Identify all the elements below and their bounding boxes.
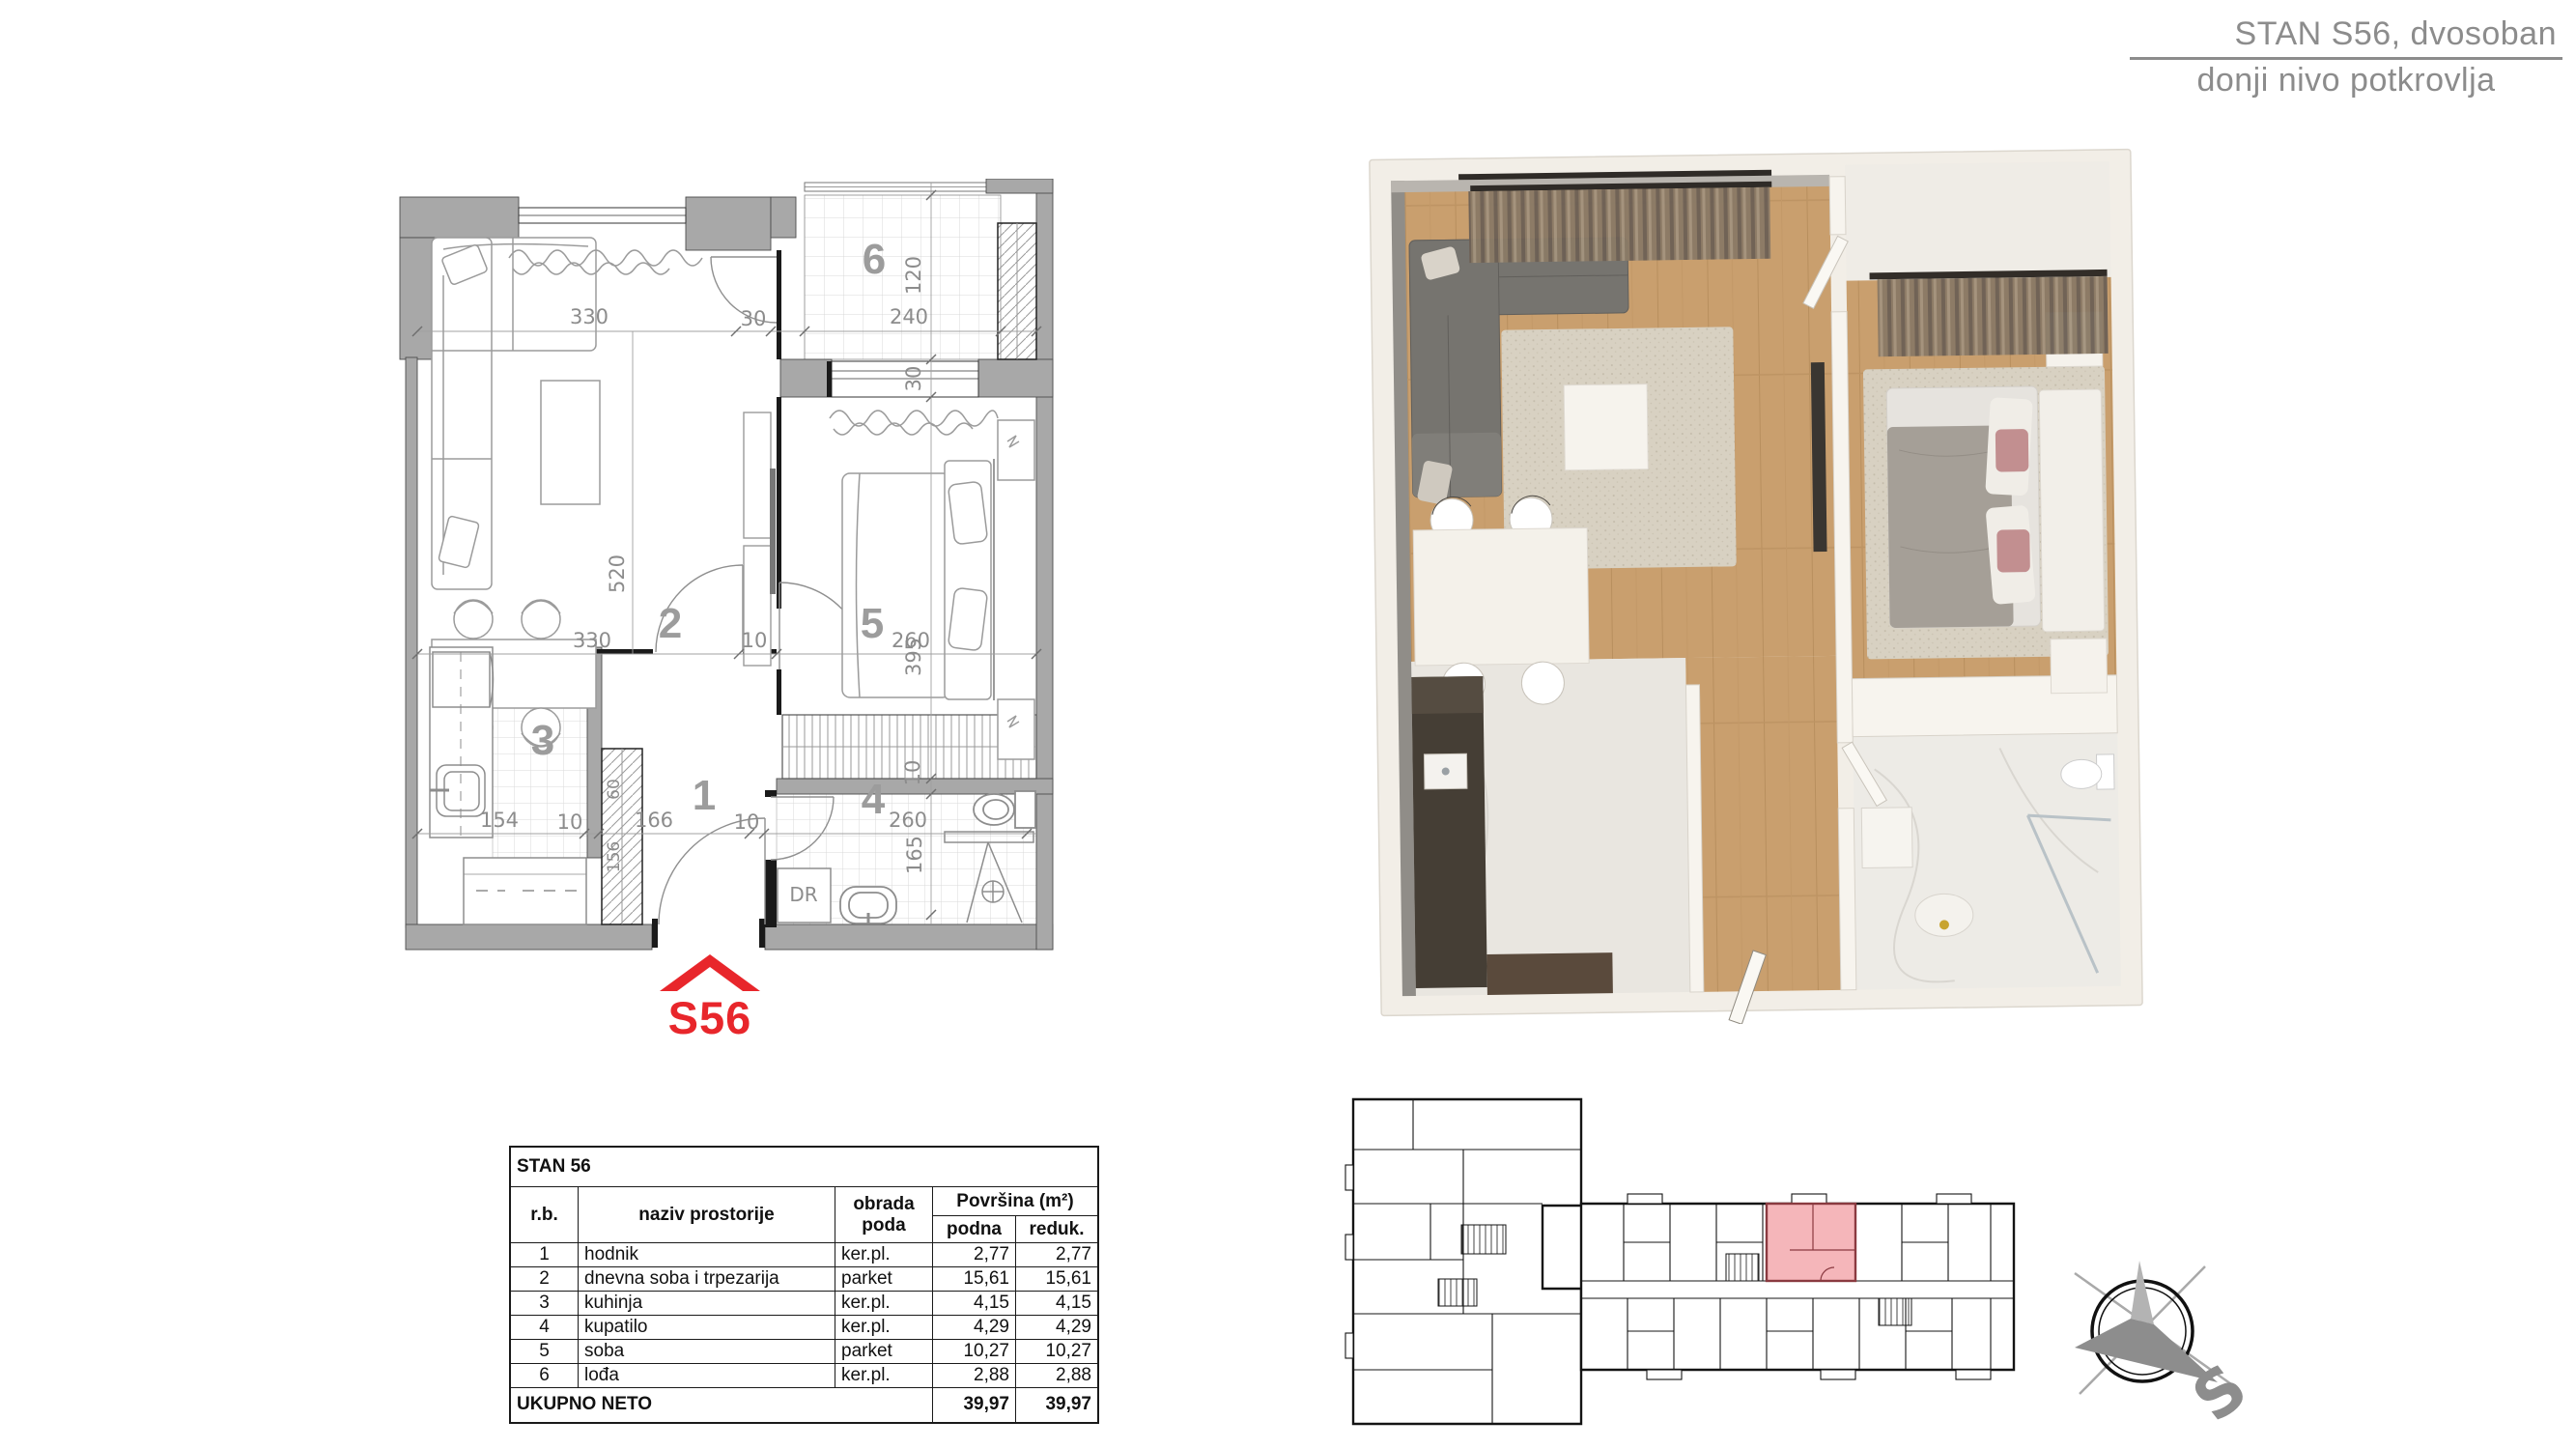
cell-reduk: 10,27 [1016,1340,1099,1364]
table-total-row: UKUPNO NETO 39,97 39,97 [510,1388,1098,1423]
cell-naziv: hodnik [579,1243,835,1267]
col-header-reduk: reduk. [1016,1216,1099,1243]
cell-rb: 5 [510,1340,579,1364]
title-underline [2130,57,2562,60]
coffee-table [541,381,600,504]
sink [840,887,896,923]
col-header-podna: podna [933,1216,1016,1243]
compass-rose: S [2046,1239,2268,1442]
cell-rb: 4 [510,1316,579,1340]
area-table-wrapper: STAN 56 r.b. naziv prostorije obrada pod… [509,1146,1099,1424]
floorplan-sheet: STAN S56, dvosoban donji nivo potkrovlja [0,0,2576,1449]
cell-podna: 15,61 [933,1267,1016,1292]
dim-v-30: 30 [902,366,925,392]
washer-label: DR [789,883,817,906]
unit-logo-label: S56 [631,995,789,1040]
total-podna: 39,97 [933,1388,1016,1423]
table-row: 1 hodnik ker.pl. 2,77 2,77 [510,1243,1098,1267]
cell-reduk: 2,88 [1016,1364,1099,1388]
cell-rb: 1 [510,1243,579,1267]
cell-obrada: parket [835,1340,933,1364]
keyplan-highlighted-unit [1767,1204,1855,1281]
dim-bot-154: 154 [480,809,519,832]
apartment-title: STAN S56, dvosoban [2130,15,2562,53]
table-row: 3 kuhinja ker.pl. 4,15 4,15 [510,1292,1098,1316]
dim-bot-166: 166 [635,809,673,832]
col-header-naziv: naziv prostorije [579,1187,835,1243]
dim-top-30: 30 [741,307,767,330]
render-3d [1360,143,2154,1024]
table-row: 2 dnevna soba i trpezarija parket 15,61 … [510,1267,1098,1292]
cell-naziv: kupatilo [579,1316,835,1340]
building-keyplan [1338,1090,2033,1435]
dim-mid-330: 330 [573,629,611,652]
col-header-obrada: obrada poda [835,1187,933,1243]
col-header-rb: r.b. [510,1187,579,1243]
render-tv [1811,362,1827,552]
hall-closet-hatch [602,749,642,924]
room-5-bedroom: 5 [861,600,884,647]
dim-bath-10: 10 [901,760,924,786]
cell-rb: 2 [510,1267,579,1292]
dim-bot-10a: 10 [557,810,583,834]
cell-naziv: lođa [579,1364,835,1388]
dim-bot-10b: 10 [734,810,760,834]
cell-rb: 6 [510,1364,579,1388]
cell-podna: 4,15 [933,1292,1016,1316]
render-coffee-table [1564,384,1648,470]
kitchen-lower-counter [464,858,586,924]
curtain-bedroom [830,411,998,435]
render-nightstand-bottom [2051,639,2108,694]
sheet-title: STAN S56, dvosoban donji nivo potkrovlja [2130,15,2562,99]
dim-mid-260: 260 [892,629,930,652]
cell-obrada: ker.pl. [835,1243,933,1267]
dim-v-120: 120 [902,256,925,295]
unit-logo: S56 [631,954,789,1040]
dim-v-520: 520 [606,554,629,593]
table-title: STAN 56 [510,1147,1098,1187]
dim-closet-156: 156 [605,841,624,872]
render-corridor-floor [1685,656,1841,992]
loggia-closet-hatch [998,223,1036,359]
cell-podna: 2,88 [933,1364,1016,1388]
render-bed [1886,385,2105,634]
floorplan-2d: DR 330 30 240 120 30 520 395 [399,179,1056,952]
render-loggia [1845,161,2111,281]
render-curtains-bedroom [1870,270,2109,356]
room-1-hall: 1 [693,772,716,819]
table-row: 5 soba parket 10,27 10,27 [510,1340,1098,1364]
dim-top-330: 330 [570,305,609,328]
cell-reduk: 2,77 [1016,1243,1099,1267]
cell-obrada: ker.pl. [835,1292,933,1316]
nightstands [998,420,1034,759]
table-row: 4 kupatilo ker.pl. 4,29 4,29 [510,1316,1098,1340]
cell-podna: 2,77 [933,1243,1016,1267]
room-3-kitchen: 3 [531,717,554,764]
dim-top-240: 240 [890,305,928,328]
dim-mid-10: 10 [742,629,768,652]
cell-obrada: ker.pl. [835,1364,933,1388]
room-6-loggia: 6 [863,236,886,283]
cell-reduk: 15,61 [1016,1267,1099,1292]
cell-obrada: ker.pl. [835,1316,933,1340]
dim-closet-60: 60 [605,779,624,800]
window-living [519,208,686,223]
cell-rb: 3 [510,1292,579,1316]
total-label: UKUPNO NETO [510,1388,933,1423]
total-reduk: 39,97 [1016,1388,1099,1423]
room-2-living: 2 [659,600,682,647]
table-row: 6 lođa ker.pl. 2,88 2,88 [510,1364,1098,1388]
room-4-bathroom: 4 [862,776,886,823]
cell-podna: 10,27 [933,1340,1016,1364]
cell-naziv: soba [579,1340,835,1364]
washer-box: DR [778,868,831,923]
cell-naziv: dnevna soba i trpezarija [579,1267,835,1292]
dim-bath-165: 165 [903,836,926,874]
keyplan-outline [1353,1099,2014,1424]
col-header-povrsina: Površina (m²) [933,1187,1099,1216]
cell-reduk: 4,29 [1016,1316,1099,1340]
roof-icon [660,954,760,991]
area-table: STAN 56 r.b. naziv prostorije obrada pod… [509,1146,1099,1424]
cell-podna: 4,29 [933,1316,1016,1340]
dim-bot-260: 260 [889,809,927,832]
toilet [974,791,1035,828]
level-subtitle: donji nivo potkrovlja [2130,62,2562,99]
cell-naziv: kuhinja [579,1292,835,1316]
cell-reduk: 4,15 [1016,1292,1099,1316]
tv-cabinet [744,412,776,666]
cell-obrada: parket [835,1267,933,1292]
